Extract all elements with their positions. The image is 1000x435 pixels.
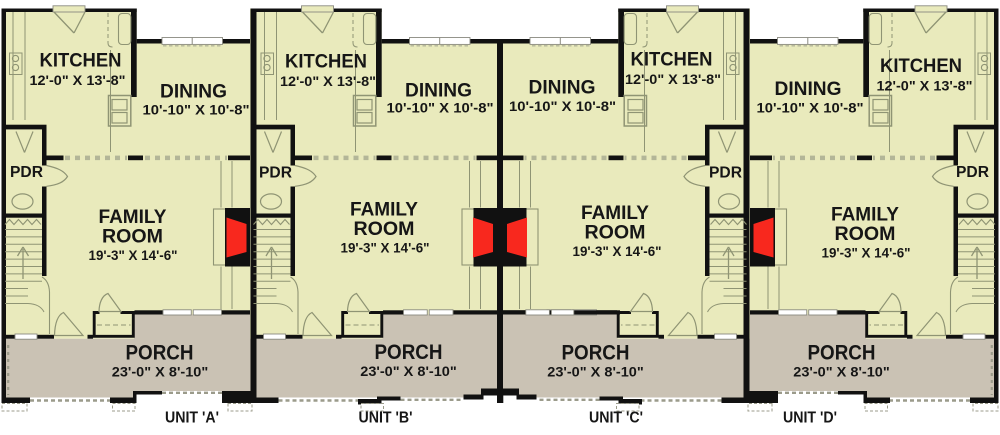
svg-text:10'-10" X 10'-8": 10'-10" X 10'-8" [509,98,616,114]
svg-text:12'-0" X 13'-8": 12'-0" X 13'-8" [280,73,376,89]
svg-text:ROOM: ROOM [102,226,163,248]
svg-text:12'-0" X 13'-8": 12'-0" X 13'-8" [625,71,721,87]
svg-text:PDR: PDR [709,165,742,182]
svg-text:10'-10" X 10'-8": 10'-10" X 10'-8" [757,100,864,116]
svg-text:KITCHEN: KITCHEN [880,56,962,77]
svg-text:19'-3" X 14'-6": 19'-3" X 14'-6" [573,243,662,259]
svg-text:UNIT 'D': UNIT 'D' [783,410,837,427]
svg-text:PDR: PDR [956,164,989,181]
svg-text:UNIT 'A': UNIT 'A' [165,410,219,427]
svg-text:DINING: DINING [405,80,472,102]
svg-text:23'-0" X 8'-10": 23'-0" X 8'-10" [793,364,890,380]
svg-text:19'-3" X 14'-6": 19'-3" X 14'-6" [341,240,430,256]
svg-text:12'-0" X 13'-8": 12'-0" X 13'-8" [877,78,973,94]
svg-text:KITCHEN: KITCHEN [631,49,713,70]
svg-text:23'-0" X 8'-10": 23'-0" X 8'-10" [547,364,644,380]
svg-text:10'-10" X 10'-8": 10'-10" X 10'-8" [143,102,250,118]
svg-text:DINING: DINING [775,78,842,100]
svg-text:19'-3" X 14'-6": 19'-3" X 14'-6" [822,245,911,261]
svg-text:ROOM: ROOM [835,223,896,245]
svg-text:UNIT 'B': UNIT 'B' [359,410,413,427]
svg-text:10'-10" X 10'-8": 10'-10" X 10'-8" [387,100,494,116]
svg-text:23'-0" X 8'-10": 23'-0" X 8'-10" [112,364,209,380]
svg-text:12'-0" X 13'-8": 12'-0" X 13'-8" [30,72,126,88]
svg-text:PORCH: PORCH [562,342,630,365]
svg-text:ROOM: ROOM [585,222,646,244]
svg-text:PORCH: PORCH [375,341,443,364]
svg-text:KITCHEN: KITCHEN [285,52,367,73]
svg-text:23'-0" X 8'-10": 23'-0" X 8'-10" [360,363,457,379]
svg-text:DINING: DINING [529,77,596,99]
svg-text:19'-3" X 14'-6": 19'-3" X 14'-6" [89,247,178,263]
svg-text:UNIT 'C': UNIT 'C' [589,410,643,427]
svg-text:PDR: PDR [10,164,43,181]
svg-text:DINING: DINING [160,81,227,103]
svg-text:KITCHEN: KITCHEN [40,51,122,72]
svg-text:ROOM: ROOM [354,218,415,240]
svg-text:PORCH: PORCH [126,342,194,365]
svg-text:PDR: PDR [259,165,292,182]
svg-text:PORCH: PORCH [808,342,876,365]
